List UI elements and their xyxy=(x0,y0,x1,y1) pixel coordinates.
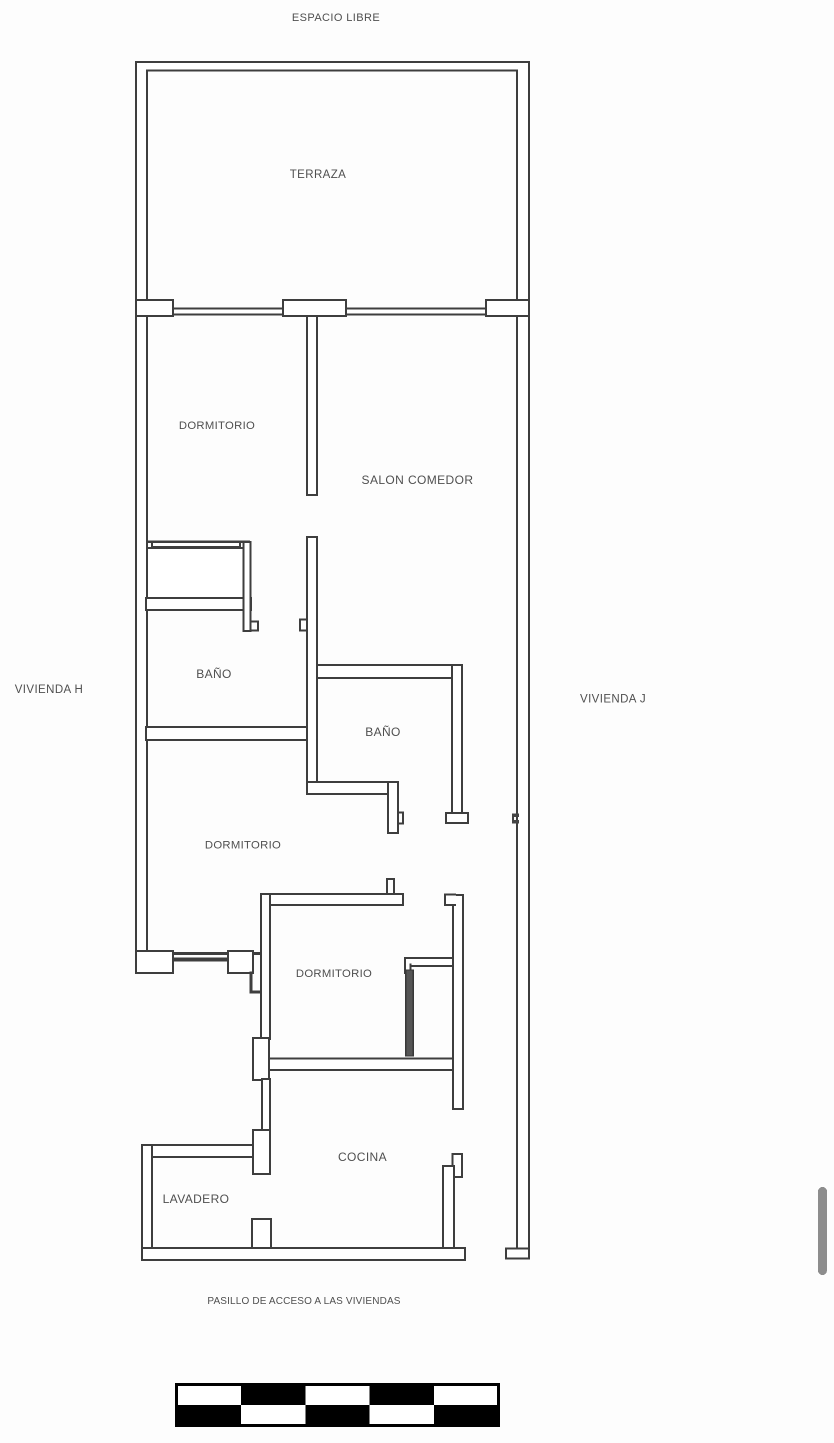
svg-text:PASILLO DE ACCESO A LAS VIVIEN: PASILLO DE ACCESO A LAS VIVIENDAS xyxy=(207,1296,400,1307)
svg-text:LAVADERO: LAVADERO xyxy=(163,1192,230,1206)
svg-text:DORMITORIO: DORMITORIO xyxy=(179,420,255,432)
svg-text:SALON COMEDOR: SALON COMEDOR xyxy=(362,473,474,487)
svg-text:DORMITORIO: DORMITORIO xyxy=(205,840,281,852)
svg-text:COCINA: COCINA xyxy=(338,1150,387,1164)
svg-text:TERRAZA: TERRAZA xyxy=(290,169,346,181)
svg-text:VIVIENDA J: VIVIENDA J xyxy=(580,694,646,706)
svg-text:VIVIENDA H: VIVIENDA H xyxy=(15,684,84,696)
svg-text:DORMITORIO: DORMITORIO xyxy=(296,968,372,980)
svg-text:BAÑO: BAÑO xyxy=(365,725,401,739)
svg-text:ESPACIO LIBRE: ESPACIO LIBRE xyxy=(292,12,380,24)
svg-text:BAÑO: BAÑO xyxy=(196,667,232,681)
